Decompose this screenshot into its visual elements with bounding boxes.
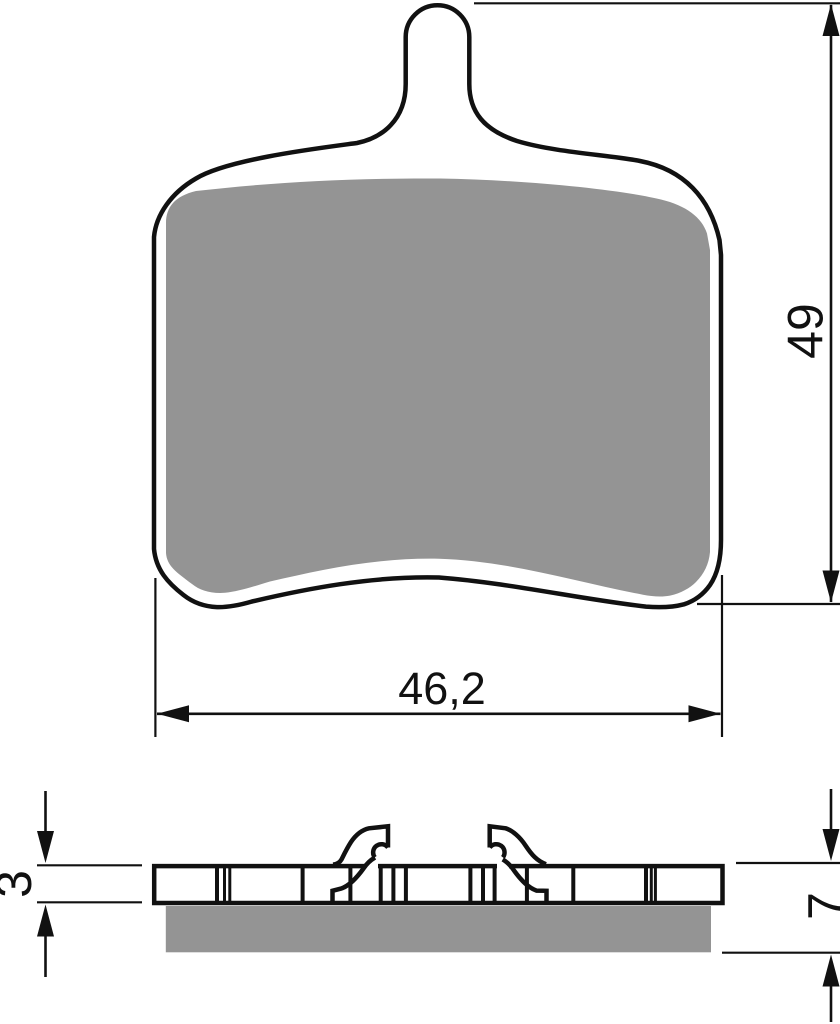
svg-text:46,2: 46,2 xyxy=(398,663,486,714)
svg-text:7: 7 xyxy=(798,892,840,920)
svg-text:3: 3 xyxy=(0,870,42,898)
svg-text:49: 49 xyxy=(778,303,834,359)
